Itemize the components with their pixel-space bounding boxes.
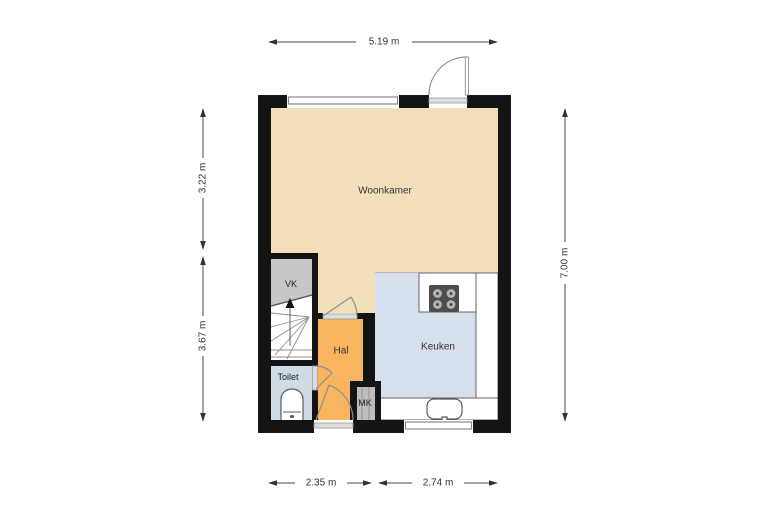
- dim-bottom-right: 2.74 m: [378, 478, 498, 489]
- dim-bottom-right-label: 2.74 m: [423, 478, 454, 489]
- dim-left-lower-label: 3.67 m: [198, 321, 209, 352]
- back-door-opening: [429, 95, 467, 108]
- back-door: [429, 57, 469, 95]
- floor-plan-drawing: Woonkamer VK Hal Keuken Toilet MK 5.19 m…: [0, 0, 768, 527]
- vk-label: VK: [285, 279, 297, 289]
- woonkamer-label: Woonkamer: [358, 186, 412, 197]
- dim-bottom-left-label: 2.35 m: [306, 478, 337, 489]
- dim-top: 5.19 m: [268, 37, 498, 48]
- dim-left-upper: 3.22 m: [198, 108, 209, 250]
- wall-right: [498, 95, 511, 433]
- wall-hal-top-stub-left: [312, 313, 323, 319]
- toilet-icon: [281, 389, 303, 420]
- hal-door-opening: [323, 314, 357, 319]
- wall-top-2: [399, 95, 429, 108]
- dim-left-lower: 3.67 m: [198, 256, 209, 422]
- wall-top-3: [467, 95, 511, 108]
- dim-right-label: 7.00 m: [560, 248, 571, 279]
- dim-bottom-left: 2.35 m: [268, 478, 372, 489]
- kitchen-window: [404, 420, 473, 433]
- keuken-label: Keuken: [421, 342, 455, 353]
- wall-bottom-1: [258, 420, 314, 433]
- dim-top-label: 5.19 m: [369, 37, 400, 48]
- hal-label: Hal: [333, 346, 348, 357]
- wall-hall-left-upper: [312, 253, 318, 366]
- toilet-door-opening: [313, 366, 318, 390]
- wall-bottom-2: [353, 420, 404, 433]
- toilet-label: Toilet: [277, 372, 299, 382]
- dim-left-upper-label: 3.22 m: [198, 163, 209, 194]
- wall-vk-top: [271, 253, 318, 259]
- mk-label: MK: [358, 398, 372, 408]
- dim-right: 7.00 m: [560, 108, 571, 422]
- wall-hal-top-stub-right: [357, 313, 363, 319]
- wall-left: [258, 95, 271, 433]
- wall-bottom-3: [473, 420, 511, 433]
- floor-plan-canvas: Woonkamer VK Hal Keuken Toilet MK 5.19 m…: [0, 0, 768, 527]
- wall-hal-keuken: [363, 313, 375, 386]
- stove-icon: [429, 285, 459, 312]
- wall-toilet-top: [271, 360, 312, 366]
- top-window: [287, 95, 399, 108]
- wall-top-1: [258, 95, 287, 108]
- front-door-opening: [314, 420, 353, 433]
